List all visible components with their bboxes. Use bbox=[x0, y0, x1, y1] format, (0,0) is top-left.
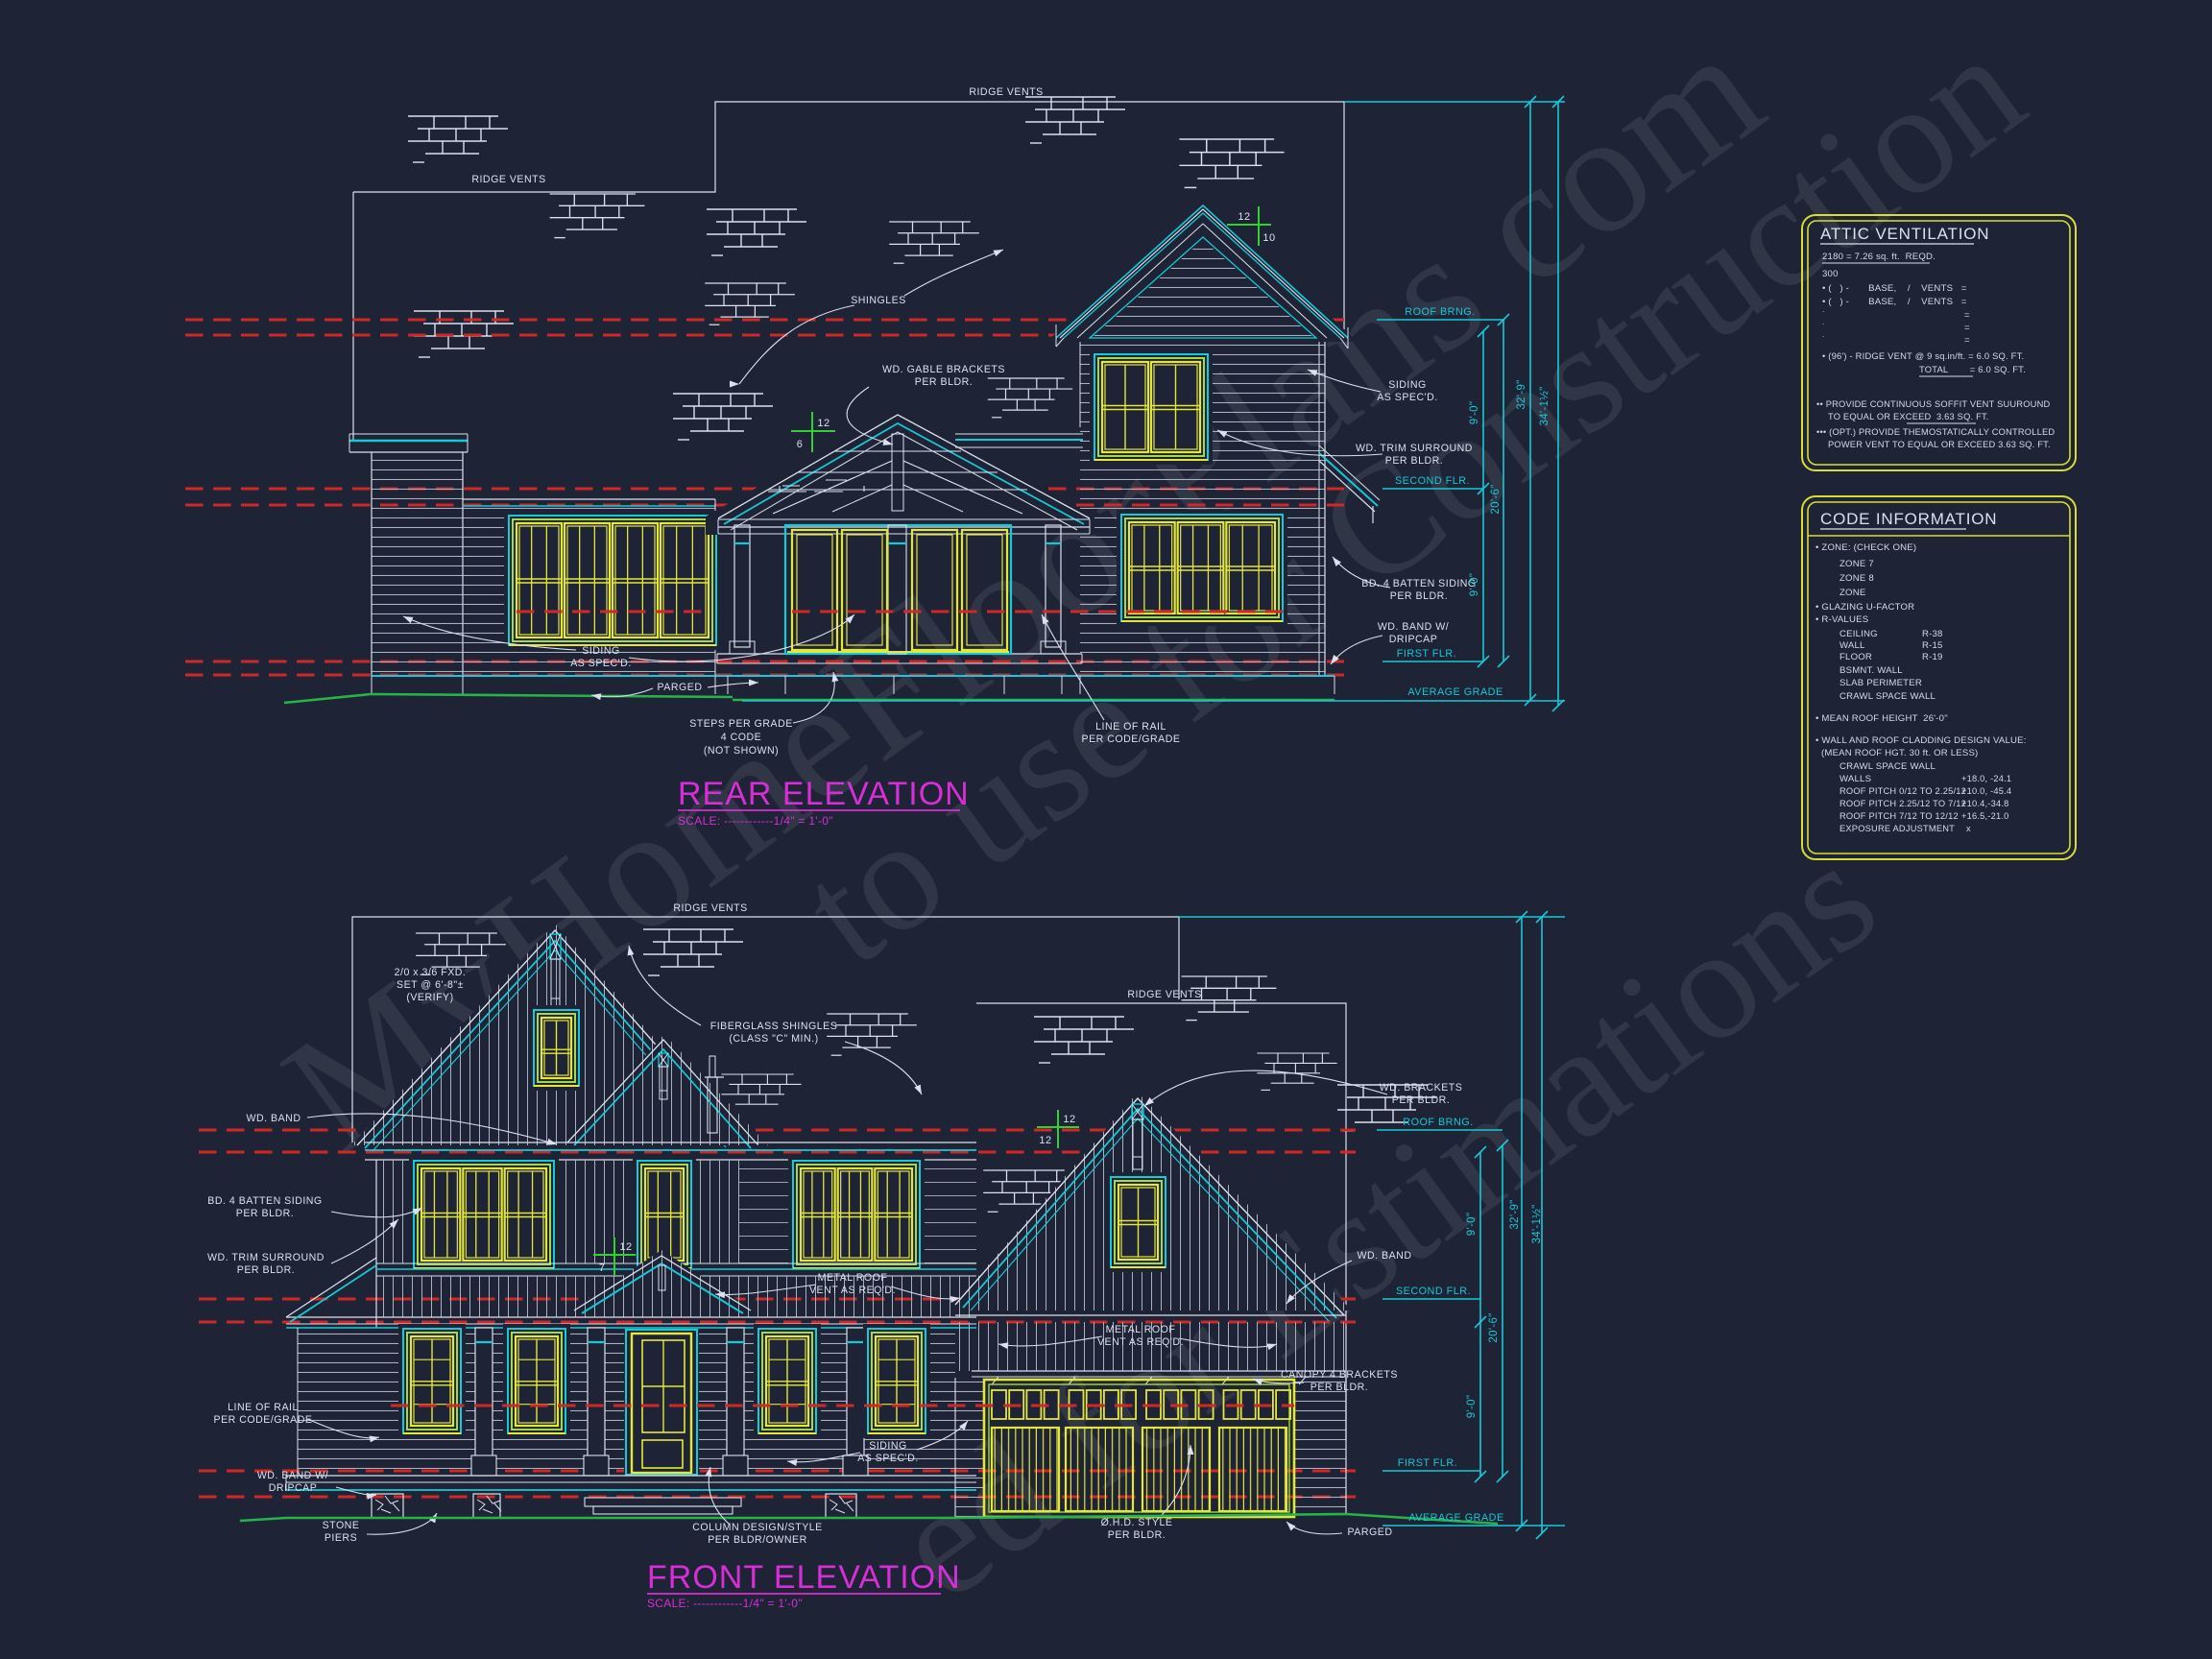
svg-text:SIDING: SIDING bbox=[869, 1440, 907, 1452]
svg-text:+10.4,-34.8: +10.4,-34.8 bbox=[1961, 799, 2009, 808]
svg-text:SHINGLES: SHINGLES bbox=[851, 295, 906, 306]
svg-text:METAL ROOF: METAL ROOF bbox=[1106, 1324, 1176, 1335]
svg-text:FIBERGLASS SHINGLES: FIBERGLASS SHINGLES bbox=[710, 1021, 838, 1032]
svg-text:PARGED: PARGED bbox=[658, 682, 703, 693]
svg-text:7: 7 bbox=[599, 1262, 606, 1274]
svg-text:WALL: WALL bbox=[1839, 640, 1865, 651]
svg-text:SECOND FLR.: SECOND FLR. bbox=[1396, 1286, 1471, 1297]
svg-text:RIDGE VENTS: RIDGE VENTS bbox=[969, 86, 1043, 98]
svg-text:+16.5,-21.0: +16.5,-21.0 bbox=[1961, 811, 2009, 821]
svg-text:RIDGE VENTS: RIDGE VENTS bbox=[471, 174, 545, 185]
svg-text:ROOF PITCH 7/12 TO 12/12: ROOF PITCH 7/12 TO 12/12 bbox=[1839, 811, 1959, 821]
svg-text:2/0 x 3/6 FXD.: 2/0 x 3/6 FXD. bbox=[395, 967, 467, 978]
svg-text:PARGED: PARGED bbox=[1348, 1527, 1393, 1538]
svg-text:WD. TRIM SURROUND: WD. TRIM SURROUND bbox=[1356, 443, 1473, 454]
svg-text:RIDGE VENTS: RIDGE VENTS bbox=[1127, 989, 1201, 1000]
svg-text:˙: ˙ bbox=[1822, 323, 1825, 333]
svg-text:Ø.H.D. STYLE: Ø.H.D. STYLE bbox=[1101, 1517, 1173, 1528]
svg-text:PER BLDR.: PER BLDR. bbox=[1385, 455, 1443, 467]
svg-text:R-38: R-38 bbox=[1922, 629, 1943, 639]
svg-text:PER BLDR.: PER BLDR. bbox=[915, 376, 973, 388]
svg-text:9'-0": 9'-0" bbox=[1466, 1395, 1478, 1418]
svg-text:PER BLDR.: PER BLDR. bbox=[1108, 1529, 1166, 1541]
svg-text:SCALE: ------------1/4" = 1'-0: SCALE: ------------1/4" = 1'-0" bbox=[647, 1597, 803, 1610]
svg-text:FIRST FLR.: FIRST FLR. bbox=[1398, 1457, 1457, 1469]
svg-text:FRONT ELEVATION: FRONT ELEVATION bbox=[647, 1559, 961, 1596]
svg-text:SET @ 6'-8"±: SET @ 6'-8"± bbox=[397, 979, 464, 991]
svg-text:DRIPCAP: DRIPCAP bbox=[1389, 634, 1438, 645]
svg-text:6: 6 bbox=[797, 439, 804, 450]
svg-text:PIERS: PIERS bbox=[325, 1532, 357, 1544]
svg-text:•• PROVIDE CONTINUOUS SOFFIT V: •• PROVIDE CONTINUOUS SOFFIT VENT SUUROU… bbox=[1816, 399, 2050, 409]
svg-text:12: 12 bbox=[1039, 1135, 1051, 1146]
svg-text:STEPS PER GRADE: STEPS PER GRADE bbox=[689, 718, 793, 730]
svg-text:SECOND FLR.: SECOND FLR. bbox=[1395, 475, 1470, 487]
svg-text:PER BLDR.: PER BLDR. bbox=[236, 1208, 294, 1219]
svg-text:PER BLDR.: PER BLDR. bbox=[1390, 590, 1448, 602]
svg-text:WD. TRIM SURROUND: WD. TRIM SURROUND bbox=[207, 1252, 325, 1263]
svg-text:BD. 4 BATTEN SIDING: BD. 4 BATTEN SIDING bbox=[207, 1195, 322, 1207]
svg-text:9'-0": 9'-0" bbox=[1469, 401, 1480, 424]
svg-text:CRAWL SPACE WALL: CRAWL SPACE WALL bbox=[1839, 761, 1936, 772]
svg-text:BSMNT. WALL: BSMNT. WALL bbox=[1839, 665, 1903, 676]
svg-text:(NOT SHOWN): (NOT SHOWN) bbox=[704, 745, 779, 757]
svg-text:ZONE 8: ZONE 8 bbox=[1839, 573, 1874, 584]
svg-text:PER BLDR.: PER BLDR. bbox=[237, 1264, 295, 1276]
svg-text:CRAWL SPACE WALL: CRAWL SPACE WALL bbox=[1839, 691, 1936, 702]
svg-text:FLOOR: FLOOR bbox=[1839, 652, 1872, 662]
svg-text:AVERAGE GRADE: AVERAGE GRADE bbox=[1407, 686, 1503, 698]
svg-text:WD. BRACKETS: WD. BRACKETS bbox=[1380, 1082, 1463, 1094]
svg-text:+18.0, -24.1: +18.0, -24.1 bbox=[1961, 774, 2011, 783]
svg-text:WD. BAND W/: WD. BAND W/ bbox=[1378, 621, 1449, 633]
svg-text:34'-1½": 34'-1½" bbox=[1539, 387, 1551, 426]
svg-text:TO EQUAL OR EXCEED 3.63 SQ. F: TO EQUAL OR EXCEED 3.63 SQ. FT. bbox=[1828, 412, 1989, 421]
svg-text:LINE OF RAIL: LINE OF RAIL bbox=[228, 1402, 299, 1413]
svg-text:WD. BAND: WD. BAND bbox=[247, 1113, 301, 1124]
svg-text:ZONE: ZONE bbox=[1839, 588, 1865, 598]
svg-text:20'-6": 20'-6" bbox=[1490, 484, 1502, 514]
svg-text:TOTAL = 6.0 SQ. FT.: TOTAL = 6.0 SQ. FT. bbox=[1919, 364, 2026, 374]
svg-text:• R-VALUES: • R-VALUES bbox=[1815, 614, 1868, 625]
svg-text:9'-0": 9'-0" bbox=[1466, 1213, 1478, 1236]
svg-text:12: 12 bbox=[619, 1241, 632, 1253]
svg-text:AS SPEC'D.: AS SPEC'D. bbox=[1377, 392, 1438, 403]
svg-text:• MEAN ROOF HEIGHT 26'-0": • MEAN ROOF HEIGHT 26'-0" bbox=[1815, 713, 1948, 724]
svg-text:PER BLDR.: PER BLDR. bbox=[1310, 1382, 1368, 1393]
svg-text:12: 12 bbox=[817, 418, 829, 429]
svg-text:• WALL AND ROOF CLADDING DESIG: • WALL AND ROOF CLADDING DESIGN VALUE: bbox=[1815, 735, 2027, 746]
svg-text:10: 10 bbox=[1262, 232, 1275, 244]
svg-text:EXPOSURE ADJUSTMENT: EXPOSURE ADJUSTMENT bbox=[1839, 824, 1955, 833]
svg-text:• (96') - RIDGE VENT @ 9 sq.in: • (96') - RIDGE VENT @ 9 sq.in/ft. = 6.0… bbox=[1822, 350, 2024, 361]
svg-text:STONE: STONE bbox=[323, 1520, 360, 1531]
svg-text:SIDING: SIDING bbox=[582, 645, 620, 657]
svg-text:ZONE 7: ZONE 7 bbox=[1839, 559, 1874, 569]
svg-text:4 CODE: 4 CODE bbox=[721, 732, 761, 743]
svg-text:32'-9": 32'-9" bbox=[1509, 1199, 1521, 1229]
svg-text:WD. GABLE BRACKETS: WD. GABLE BRACKETS bbox=[882, 364, 1005, 375]
svg-text:SCALE: ------------1/4" = 1'-0: SCALE: ------------1/4" = 1'-0" bbox=[678, 814, 833, 828]
svg-text:LINE OF RAIL: LINE OF RAIL bbox=[1095, 721, 1166, 733]
svg-text:20'-6": 20'-6" bbox=[1488, 1312, 1500, 1342]
svg-text:AS SPEC'D.: AS SPEC'D. bbox=[857, 1453, 919, 1464]
svg-text:ROOF PITCH 2.25/12 TO 7/12: ROOF PITCH 2.25/12 TO 7/12 bbox=[1839, 799, 1966, 808]
svg-text:WD. BAND: WD. BAND bbox=[1358, 1250, 1412, 1262]
svg-text:(MEAN ROOF HGT. 30 ft. OR LESS: (MEAN ROOF HGT. 30 ft. OR LESS) bbox=[1821, 748, 1978, 758]
svg-text:34'-1½": 34'-1½" bbox=[1531, 1205, 1543, 1244]
svg-text:• ZONE: (CHECK ONE): • ZONE: (CHECK ONE) bbox=[1815, 542, 1916, 553]
svg-text:32'-9": 32'-9" bbox=[1516, 379, 1527, 409]
svg-text:BD. 4 BATTEN SIDING: BD. 4 BATTEN SIDING bbox=[1361, 578, 1476, 589]
svg-text:ROOF PITCH 0/12 TO 2.25/12: ROOF PITCH 0/12 TO 2.25/12 bbox=[1839, 786, 1966, 796]
svg-text:AS SPEC'D.: AS SPEC'D. bbox=[570, 658, 632, 669]
svg-text:(VERIFY): (VERIFY) bbox=[406, 992, 453, 1003]
svg-text:COLUMN DESIGN/STYLE: COLUMN DESIGN/STYLE bbox=[692, 1522, 822, 1533]
svg-text:• ( ) - BASE, /: • ( ) - BASE, / VENTS = bbox=[1822, 283, 1967, 294]
svg-text:REAR ELEVATION: REAR ELEVATION bbox=[678, 776, 970, 812]
svg-text:RIDGE VENTS: RIDGE VENTS bbox=[673, 902, 747, 914]
svg-text:12: 12 bbox=[1238, 211, 1250, 223]
svg-text:DRIPCAP: DRIPCAP bbox=[269, 1482, 318, 1494]
svg-text:300: 300 bbox=[1822, 269, 1839, 279]
svg-text:+10.0, -45.4: +10.0, -45.4 bbox=[1961, 786, 2011, 796]
svg-text:PER CODE/GRADE: PER CODE/GRADE bbox=[1082, 733, 1181, 745]
svg-text:12: 12 bbox=[1063, 1114, 1075, 1125]
svg-text:• GLAZING U-FACTOR: • GLAZING U-FACTOR bbox=[1815, 602, 1914, 613]
svg-text:VENT AS REQ'D.: VENT AS REQ'D. bbox=[809, 1285, 896, 1296]
svg-text:• ( ) - BASE, /: • ( ) - BASE, / VENTS = bbox=[1822, 297, 1967, 307]
svg-text:SLAB PERIMETER: SLAB PERIMETER bbox=[1839, 678, 1922, 688]
svg-text:˙: ˙ bbox=[1822, 310, 1825, 321]
svg-text:ROOF BRNG.: ROOF BRNG. bbox=[1405, 306, 1475, 318]
svg-text:=: = bbox=[1964, 335, 1970, 346]
svg-text:9'-0": 9'-0" bbox=[1469, 573, 1480, 596]
svg-text:WD. BAND W/: WD. BAND W/ bbox=[257, 1470, 328, 1481]
svg-text:R-15: R-15 bbox=[1922, 640, 1943, 651]
svg-text:=: = bbox=[1964, 310, 1970, 321]
svg-text:CANOPY 4 BRACKETS: CANOPY 4 BRACKETS bbox=[1281, 1369, 1398, 1381]
svg-text:ATTIC VENTILATION: ATTIC VENTILATION bbox=[1820, 225, 1989, 243]
svg-text:SIDING: SIDING bbox=[1388, 379, 1427, 391]
svg-text:(CLASS "C" MIN.): (CLASS "C" MIN.) bbox=[729, 1033, 818, 1045]
svg-text:VENT AS REQ'D.: VENT AS REQ'D. bbox=[1097, 1336, 1184, 1348]
svg-text:=: = bbox=[1964, 323, 1970, 333]
svg-text:FIRST FLR.: FIRST FLR. bbox=[1397, 648, 1456, 660]
svg-text:METAL ROOF: METAL ROOF bbox=[818, 1272, 888, 1284]
svg-text:POWER VENT TO EQUAL OR EXCEED: POWER VENT TO EQUAL OR EXCEED 3.63 SQ. F… bbox=[1828, 440, 2051, 449]
svg-text:PER CODE/GRADE: PER CODE/GRADE bbox=[214, 1414, 313, 1426]
svg-text:˙: ˙ bbox=[1822, 335, 1825, 346]
svg-text:PER BLDR.: PER BLDR. bbox=[1392, 1094, 1450, 1106]
svg-text:x: x bbox=[1966, 824, 1971, 833]
svg-text:ROOF BRNG.: ROOF BRNG. bbox=[1403, 1117, 1473, 1128]
svg-text:••• (OPT.) PROVIDE THEMOSTATIC: ••• (OPT.) PROVIDE THEMOSTATICALLY CONTR… bbox=[1816, 427, 2055, 437]
svg-text:AVERAGE GRADE: AVERAGE GRADE bbox=[1408, 1512, 1503, 1524]
svg-text:CEILING: CEILING bbox=[1839, 629, 1878, 639]
svg-text:2180 = 7.26 sq. ft. REQD.: 2180 = 7.26 sq. ft. REQD. bbox=[1822, 252, 1935, 262]
svg-text:R-19: R-19 bbox=[1922, 652, 1943, 662]
svg-text:WALLS: WALLS bbox=[1839, 774, 1871, 784]
svg-text:PER BLDR/OWNER: PER BLDR/OWNER bbox=[708, 1534, 807, 1546]
svg-text:CODE INFORMATION: CODE INFORMATION bbox=[1820, 510, 1997, 528]
